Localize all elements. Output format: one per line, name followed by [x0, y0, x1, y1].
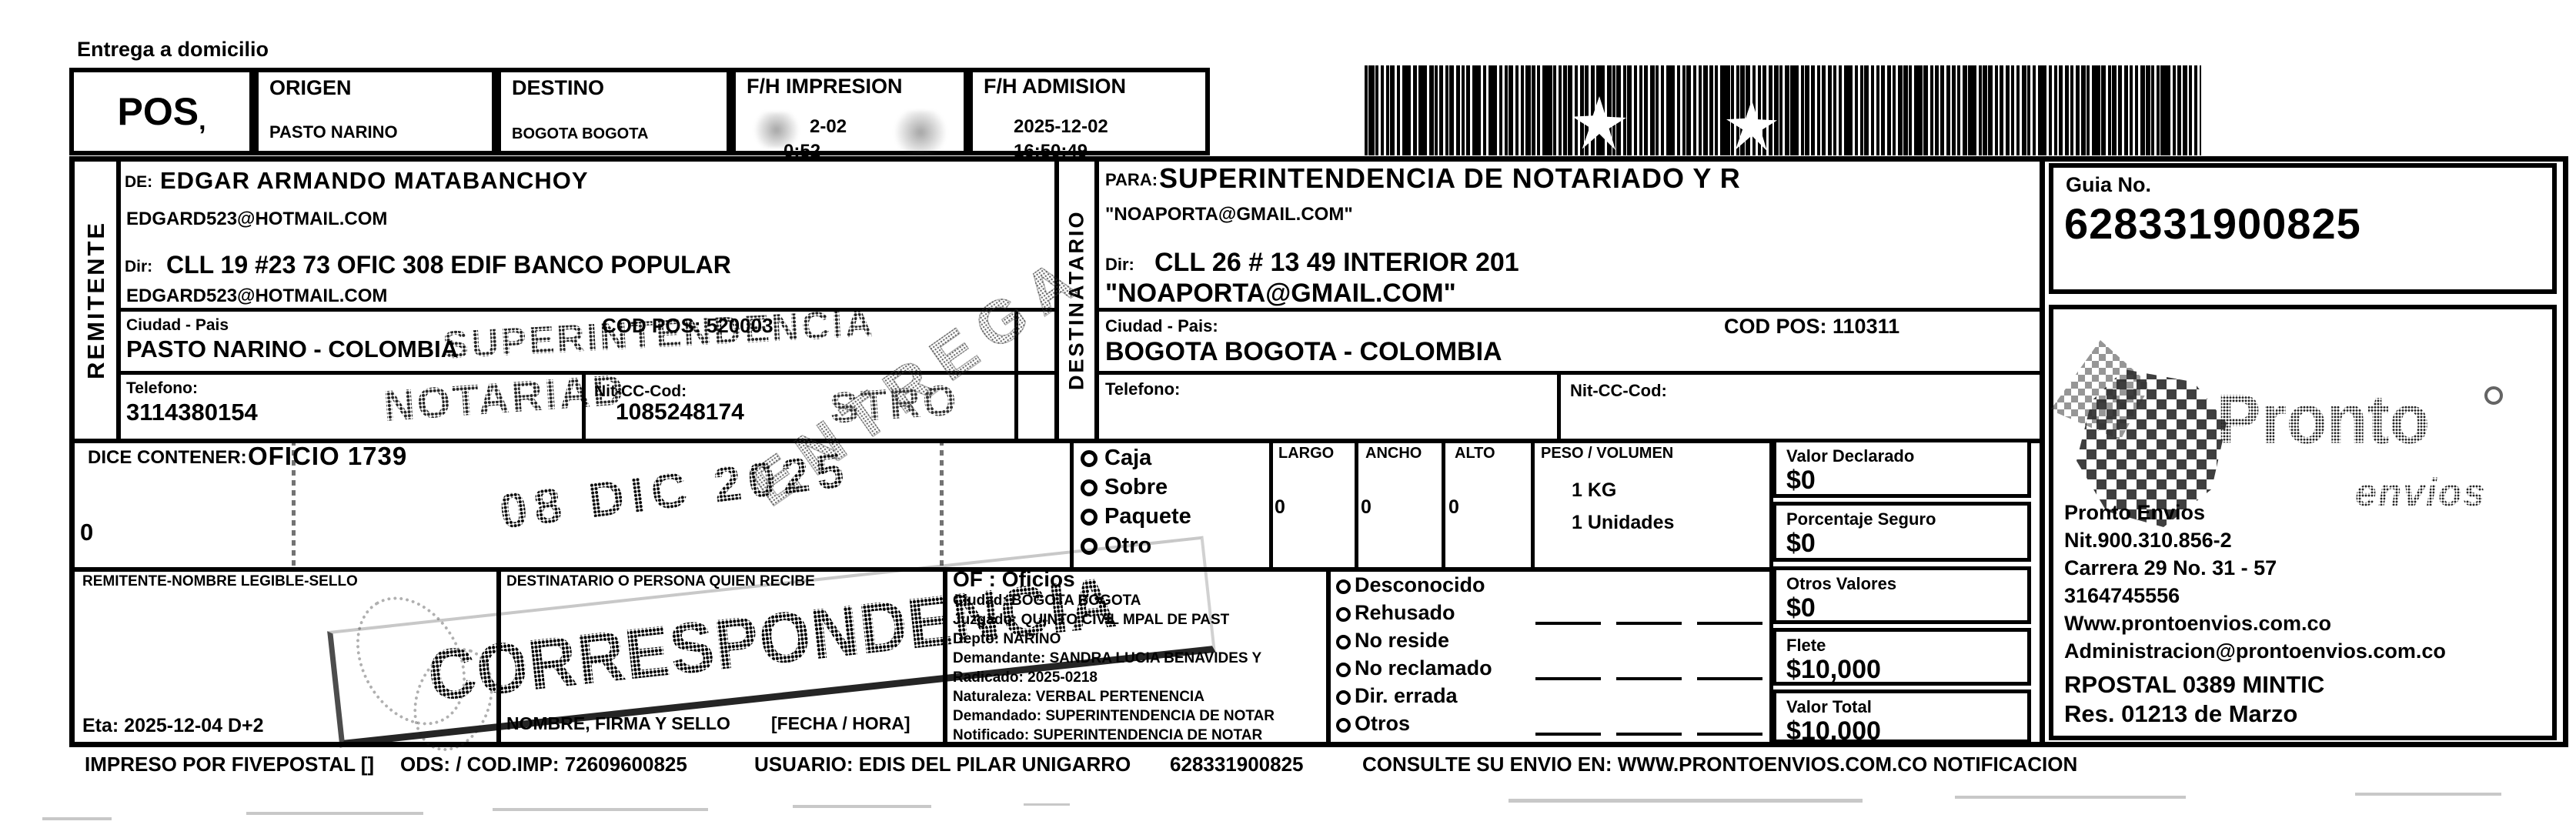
divider	[1070, 439, 1074, 567]
destination-box: DESTINO BOGOTA BOGOTA	[496, 68, 731, 155]
other-values-label: Otros Valores	[1786, 574, 1896, 594]
admission-datetime-box: F/H ADMISION 2025-12-02 16:50:49	[968, 68, 1210, 155]
print-datetime-label: F/H IMPRESION	[747, 75, 903, 97]
insurance-box: Porcentaje Seguro $0	[1772, 502, 2031, 562]
declared-value: $0	[1786, 466, 1816, 496]
recipient-city-label: Ciudad - Pais:	[1105, 317, 1218, 335]
sender-city: PASTO NARINO - COLOMBIA	[126, 337, 458, 362]
sender-nit: 1085248174	[616, 400, 744, 425]
freight-label: Flete	[1786, 636, 1826, 656]
incidence-label: No reclamado	[1355, 656, 1492, 679]
carrier-address: Carrera 29 No. 31 - 57	[2064, 557, 2277, 579]
scan-artifact	[1509, 799, 1863, 803]
recipient-address: CLL 26 # 13 49 INTERIOR 201	[1154, 249, 1519, 277]
scan-smudge	[750, 112, 804, 148]
recipient-para-label: PARA:	[1105, 171, 1158, 189]
origin-box: ORIGEN PASTO NARINO	[254, 68, 496, 155]
scan-artifact	[1024, 803, 1070, 806]
package-type-label: Sobre	[1104, 475, 1168, 499]
package-type-label: Caja	[1104, 446, 1151, 470]
sender-city-label: Ciudad - Pais	[126, 317, 229, 334]
radio-icon	[1336, 690, 1351, 705]
recipient-postal-code: COD POS: 110311	[1724, 316, 1899, 337]
scan-artifact	[1955, 796, 2186, 799]
incidence-otros: Otros	[1336, 713, 1410, 734]
sender-dir-label: Dir:	[125, 259, 152, 275]
footer-waybill-number: 628331900825	[1170, 754, 1304, 775]
length-value: 0	[1275, 497, 1285, 517]
other-values: $0	[1786, 593, 1816, 623]
divider	[1269, 439, 1273, 567]
carrier-logo-text: Pronto	[2217, 383, 2430, 456]
package-type-paquete: Paquete	[1081, 505, 1191, 528]
recipient-nit-label: Nit-CC-Cod:	[1570, 382, 1667, 399]
sender-email-2: EDGARD523@HOTMAIL.COM	[126, 286, 387, 305]
package-type-caja: Caja	[1081, 446, 1151, 469]
insurance-label: Porcentaje Seguro	[1786, 509, 1936, 529]
divider	[1326, 572, 1331, 747]
write-in-line	[1535, 733, 1766, 736]
origin-value: PASTO NARINO	[269, 123, 398, 141]
divider	[1094, 162, 1099, 439]
radio-icon	[1336, 607, 1351, 622]
admission-datetime-label: F/H ADMISION	[984, 75, 1126, 97]
scan-artifact	[2355, 793, 2501, 796]
incidence-label: Dir. errada	[1355, 684, 1458, 707]
total-label: Valor Total	[1786, 697, 1872, 717]
incidence-label: Otros	[1355, 712, 1410, 735]
waybill-number-box: Guia No. 628331900825	[2049, 163, 2557, 294]
divider	[1442, 439, 1445, 567]
incidence-no-reclamado: No reclamado	[1336, 657, 1492, 679]
carrier-website: Www.prontoenvios.com.co	[2064, 613, 2331, 634]
recipient-city: BOGOTA BOGOTA - COLOMBIA	[1105, 339, 1502, 366]
sender-email: EDGARD523@HOTMAIL.COM	[126, 209, 387, 229]
sender-phone-label: Telefono:	[126, 380, 198, 397]
divider	[1099, 308, 2040, 312]
footer-user: USUARIO: EDIS DEL PILAR UNIGARRO	[754, 754, 1131, 775]
write-in-line	[1535, 622, 1766, 625]
contents-value: OFICIO 1739	[248, 443, 407, 470]
freight-box: Flete $10,000	[1772, 628, 2031, 686]
carrier-rpostal: RPOSTAL 0389 MINTIC	[2064, 673, 2324, 698]
divider	[121, 308, 1054, 312]
pos-mark: ,	[199, 108, 205, 135]
height-label: ALTO	[1455, 446, 1495, 462]
write-in-line	[1535, 677, 1766, 680]
radio-icon	[1336, 579, 1351, 594]
scan-artifact	[42, 817, 112, 820]
incidence-desconocido: Desconocido	[1336, 574, 1485, 596]
admission-date: 2025-12-02	[1014, 117, 1108, 136]
sender-phone: 3114380154	[126, 400, 258, 426]
divider	[1531, 439, 1535, 567]
carrier-email: Administracion@prontoenvios.com.co	[2064, 640, 2446, 662]
contents-label: DICE CONTENER:	[88, 448, 247, 467]
sender-de-label: DE:	[125, 174, 152, 191]
footer-printed-by: IMPRESO POR FIVEPOSTAL []	[85, 754, 374, 775]
recipient-phone-label: Telefono:	[1105, 380, 1180, 398]
registered-mark-icon	[2484, 386, 2503, 405]
oficio-nature: Naturaleza: VERBAL PERTENENCIA	[953, 689, 1204, 705]
sender-section-label: REMITENTE	[76, 162, 116, 439]
oficio-defendant: Demandado: SUPERINTENDENCIA DE NOTAR	[953, 709, 1275, 724]
print-datetime-box: F/H IMPRESION 2-02 0:52	[731, 68, 968, 155]
insurance-value: $0	[1786, 529, 1816, 559]
scan-artifact	[793, 805, 931, 808]
incidence-label: No reside	[1355, 629, 1449, 652]
recipient-name: SUPERINTENDENCIA DE NOTARIADO Y R	[1159, 164, 1741, 193]
incidence-rehusado: Rehusado	[1336, 602, 1455, 623]
height-value: 0	[1448, 497, 1459, 517]
declared-value-label: Valor Declarado	[1786, 446, 1914, 466]
divider	[1355, 439, 1358, 567]
units-value: 1 Unidades	[1572, 512, 1674, 533]
destination-value: BOGOTA BOGOTA	[512, 126, 648, 142]
radio-icon	[1336, 663, 1351, 677]
package-type-label: Paquete	[1104, 504, 1191, 529]
width-label: ANCHO	[1365, 446, 1422, 462]
contents-quantity: 0	[80, 520, 93, 546]
incidence-dir-errada: Dir. errada	[1336, 685, 1458, 706]
radio-icon	[1336, 635, 1351, 649]
eta-value: Eta: 2025-12-04 D+2	[82, 716, 264, 736]
package-type-sobre: Sobre	[1081, 476, 1168, 499]
origin-label: ORIGEN	[269, 77, 352, 98]
radio-icon	[1081, 479, 1098, 496]
scan-artifact	[246, 812, 423, 815]
scan-streak	[940, 442, 944, 566]
radio-icon	[1336, 718, 1351, 733]
date-time-line-label: [FECHA / HORA]	[771, 714, 910, 733]
width-value: 0	[1361, 497, 1372, 517]
sender-name: EDGAR ARMANDO MATABANCHOY	[160, 169, 589, 194]
recipient-dir-label: Dir:	[1105, 255, 1134, 273]
total-box: Valor Total $10,000	[1772, 689, 2031, 743]
carrier-name: Pronto Envios	[2064, 502, 2205, 523]
oficio-notified: Notificado: SUPERINTENDENCIA DE NOTAR	[953, 728, 1262, 743]
incidence-no-reside: No reside	[1336, 629, 1449, 651]
other-values-box: Otros Valores $0	[1772, 566, 2031, 624]
shipping-waybill: Entrega a domicilio POS , ORIGEN PASTO N…	[0, 0, 2576, 828]
barcode-defect	[1572, 96, 1626, 150]
carrier-phone: 3164745556	[2064, 585, 2180, 606]
pos-box: POS ,	[69, 68, 254, 155]
barcode-defect	[1726, 100, 1777, 151]
total-value: $10,000	[1786, 716, 1881, 746]
pos-label: POS	[117, 92, 199, 132]
print-date: 2-02	[810, 117, 847, 136]
recipient-email: "NOAPORTA@GMAIL.COM"	[1105, 205, 1353, 224]
sender-address: CLL 19 #23 73 OFIC 308 EDIF BANCO POPULA…	[166, 252, 731, 279]
tracking-barcode	[1365, 65, 2201, 155]
divider	[2040, 156, 2045, 747]
scan-smudge	[890, 111, 951, 154]
radio-icon	[1081, 450, 1098, 467]
freight-value: $10,000	[1786, 655, 1881, 685]
weight-value: 1 KG	[1572, 480, 1616, 500]
declared-value-box: Valor Declarado $0	[1772, 439, 2031, 498]
scan-streak	[292, 442, 296, 566]
length-label: LARGO	[1278, 446, 1334, 462]
footer-ods-code: ODS: / COD.IMP: 72609600825	[400, 754, 687, 775]
scan-artifact	[493, 808, 708, 811]
divider	[1099, 371, 2040, 375]
incidence-label: Rehusado	[1355, 601, 1455, 624]
footer-tracking-info: CONSULTE SU ENVIO EN: WWW.PRONTOENVIOS.C…	[1362, 754, 2077, 775]
weight-label: PESO / VOLUMEN	[1541, 446, 1673, 462]
waybill-number: 628331900825	[2064, 202, 2361, 247]
carrier-logo-subtext: envios	[2355, 472, 2486, 513]
divider	[116, 162, 121, 439]
divider	[1557, 375, 1561, 439]
recipient-email-2: "NOAPORTA@GMAIL.COM"	[1105, 280, 1456, 308]
carrier-box: Pronto envios Pronto Envios Nit.900.310.…	[2049, 305, 2557, 740]
waybill-number-label: Guia No.	[2066, 174, 2151, 195]
delivery-type-note: Entrega a domicilio	[77, 38, 269, 60]
carrier-nit: Nit.900.310.856-2	[2064, 529, 2232, 551]
radio-icon	[1081, 509, 1098, 526]
destination-label: DESTINO	[512, 77, 604, 98]
incidence-label: Desconocido	[1355, 573, 1485, 596]
carrier-resolution: Res. 01213 de Marzo	[2064, 702, 2297, 727]
sender-signature-label: REMITENTE-NOMBRE LEGIBLE-SELLO	[82, 574, 358, 589]
